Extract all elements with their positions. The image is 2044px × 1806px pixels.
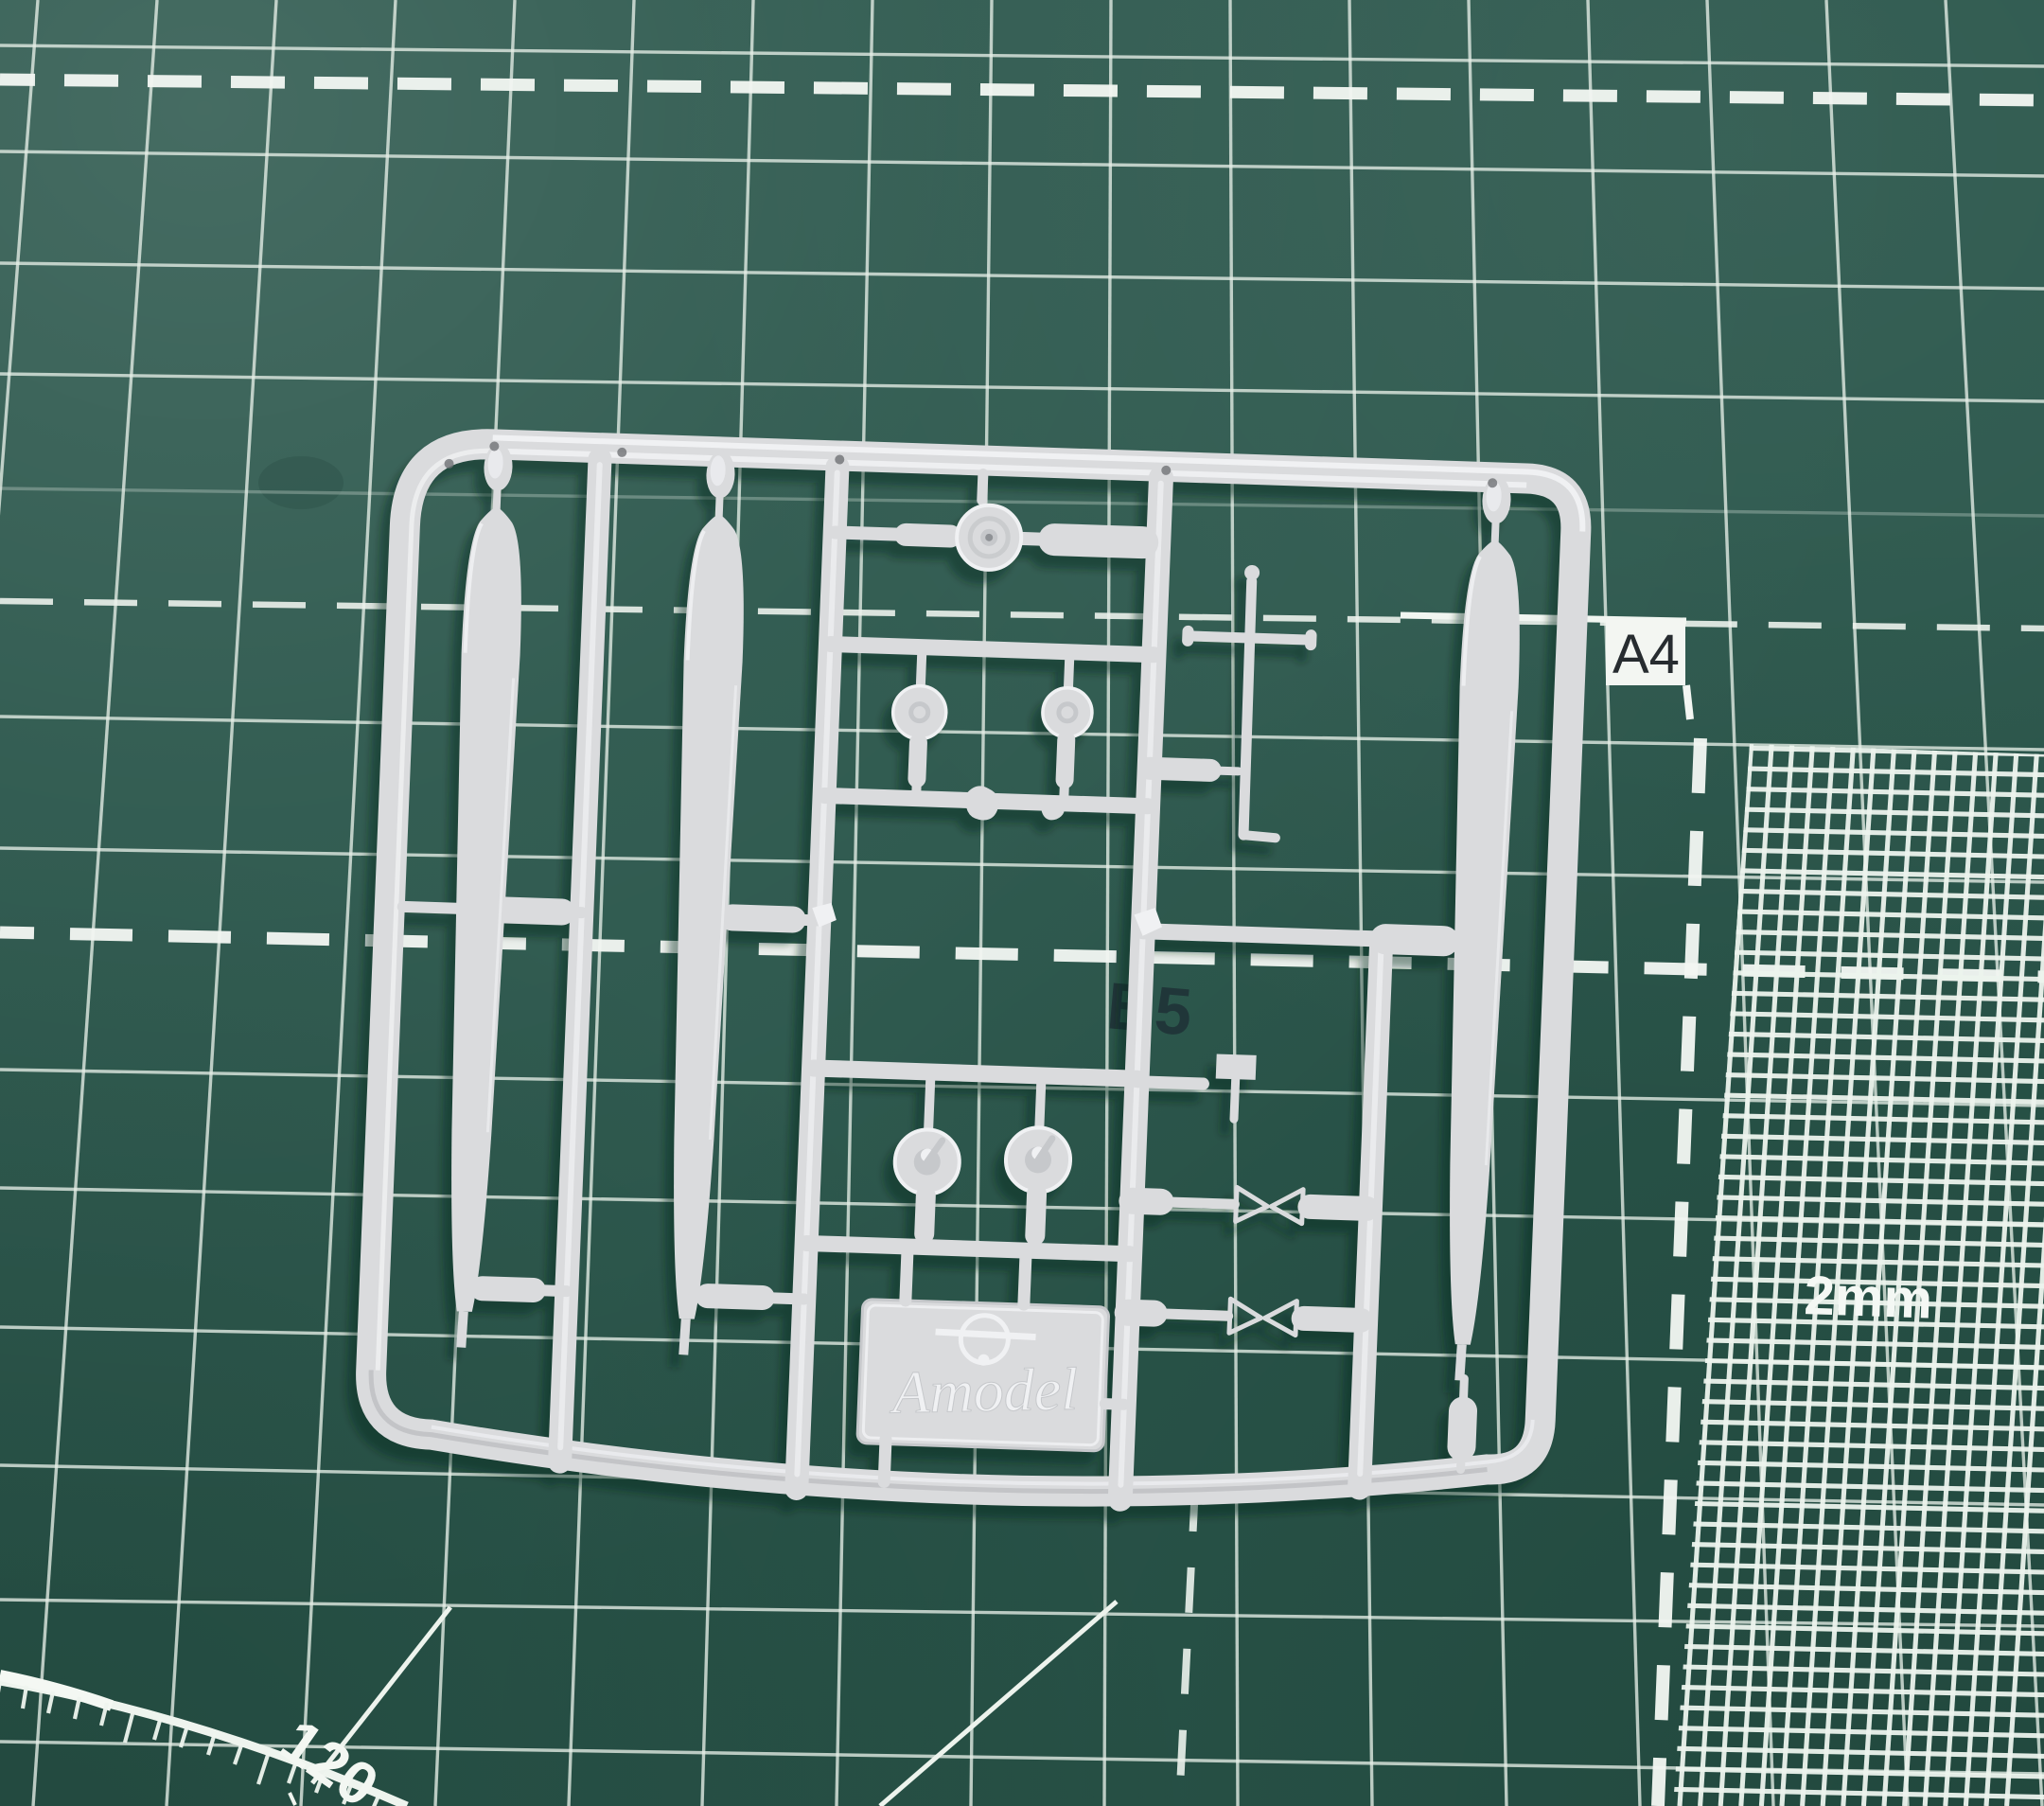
svg-text:2mm: 2mm [1804, 1265, 1934, 1331]
svg-text:A4: A4 [1612, 624, 1680, 685]
svg-text:Amodel: Amodel [889, 1355, 1078, 1426]
